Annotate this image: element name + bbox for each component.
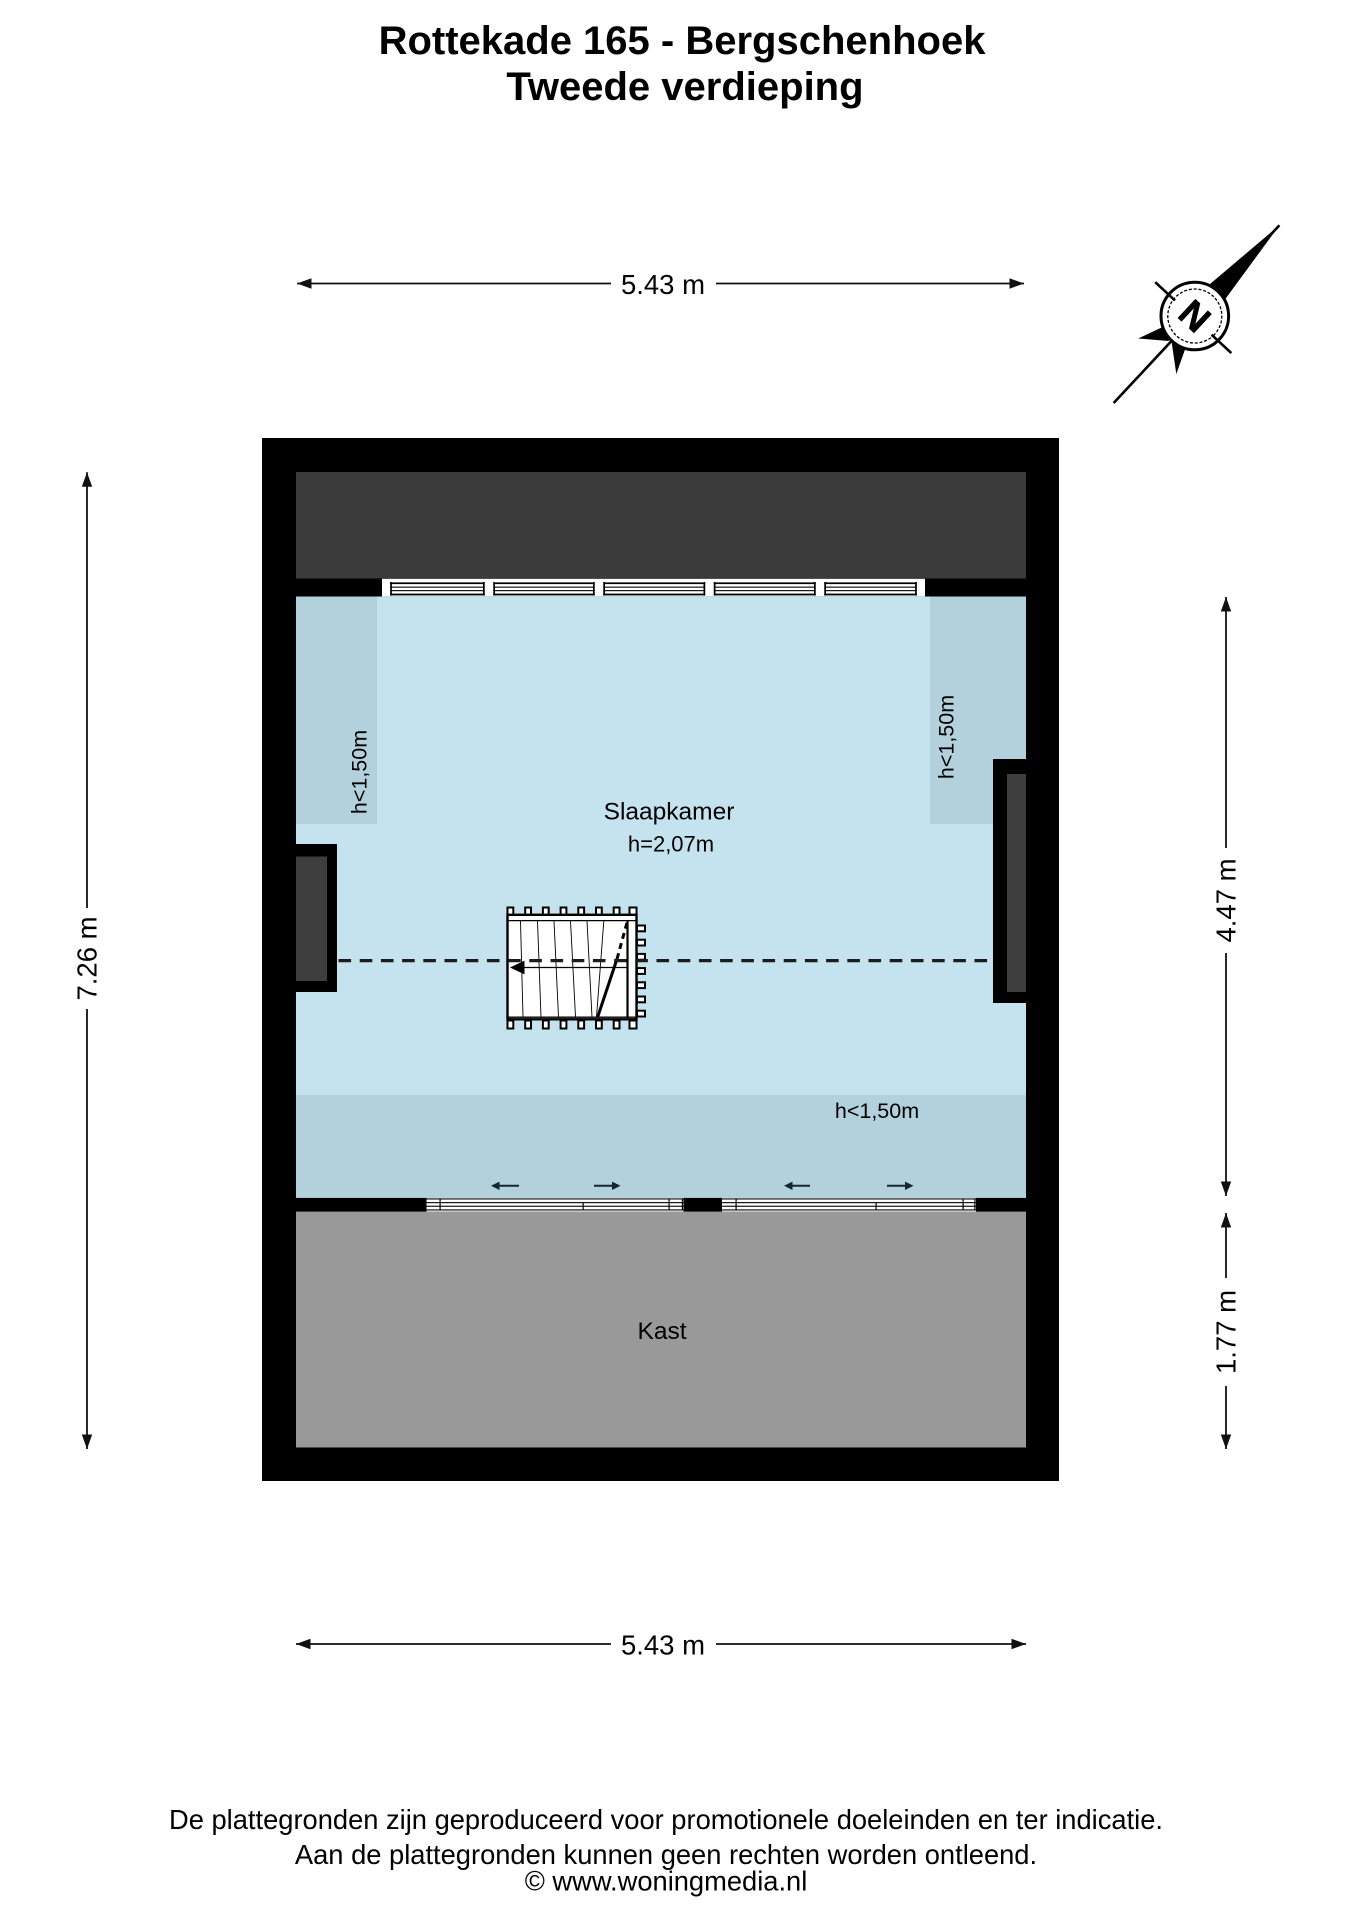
- svg-text:Slaapkamer: Slaapkamer: [604, 799, 735, 826]
- svg-text:5.43 m: 5.43 m: [621, 1630, 705, 1661]
- svg-text:Kast: Kast: [637, 1318, 686, 1345]
- svg-text:h<1,50m: h<1,50m: [348, 730, 372, 814]
- svg-text:5.43 m: 5.43 m: [621, 269, 705, 300]
- svg-text:© www.woningmedia.nl: © www.woningmedia.nl: [525, 1866, 808, 1897]
- svg-text:h<1,50m: h<1,50m: [835, 1099, 919, 1123]
- svg-text:h<1,50m: h<1,50m: [935, 695, 959, 779]
- svg-text:1.77 m: 1.77 m: [1211, 1290, 1242, 1374]
- svg-text:Tweede verdieping: Tweede verdieping: [506, 65, 863, 109]
- svg-text:h=2,07m: h=2,07m: [628, 832, 714, 857]
- svg-text:4.47 m: 4.47 m: [1211, 858, 1242, 942]
- svg-text:Rottekade 165 - Bergschenhoek: Rottekade 165 - Bergschenhoek: [379, 19, 987, 63]
- svg-text:De plattegronden zijn geproduc: De plattegronden zijn geproduceerd voor …: [169, 1804, 1163, 1835]
- svg-text:7.26 m: 7.26 m: [72, 916, 103, 1000]
